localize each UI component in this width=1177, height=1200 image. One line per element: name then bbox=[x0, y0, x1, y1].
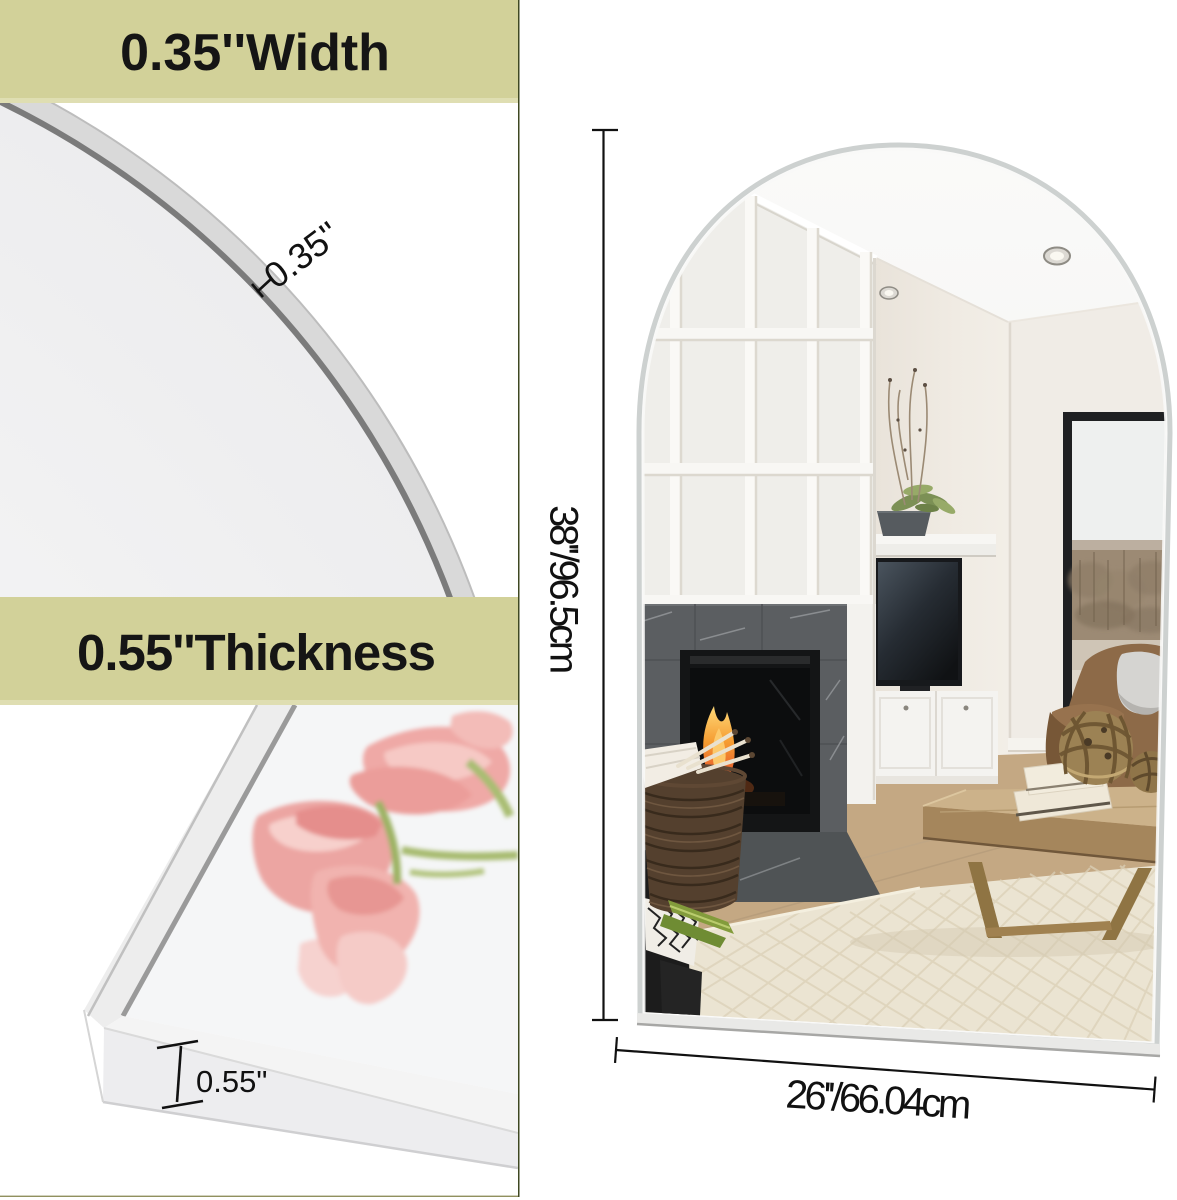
svg-text:0.55": 0.55" bbox=[196, 1064, 267, 1099]
svg-text:26''/66.04cm: 26''/66.04cm bbox=[784, 1073, 970, 1128]
svg-text:0.35''Width: 0.35''Width bbox=[120, 24, 390, 82]
svg-text:38''/96.5cm: 38''/96.5cm bbox=[541, 505, 585, 672]
svg-text:0.55''Thickness: 0.55''Thickness bbox=[77, 624, 435, 681]
